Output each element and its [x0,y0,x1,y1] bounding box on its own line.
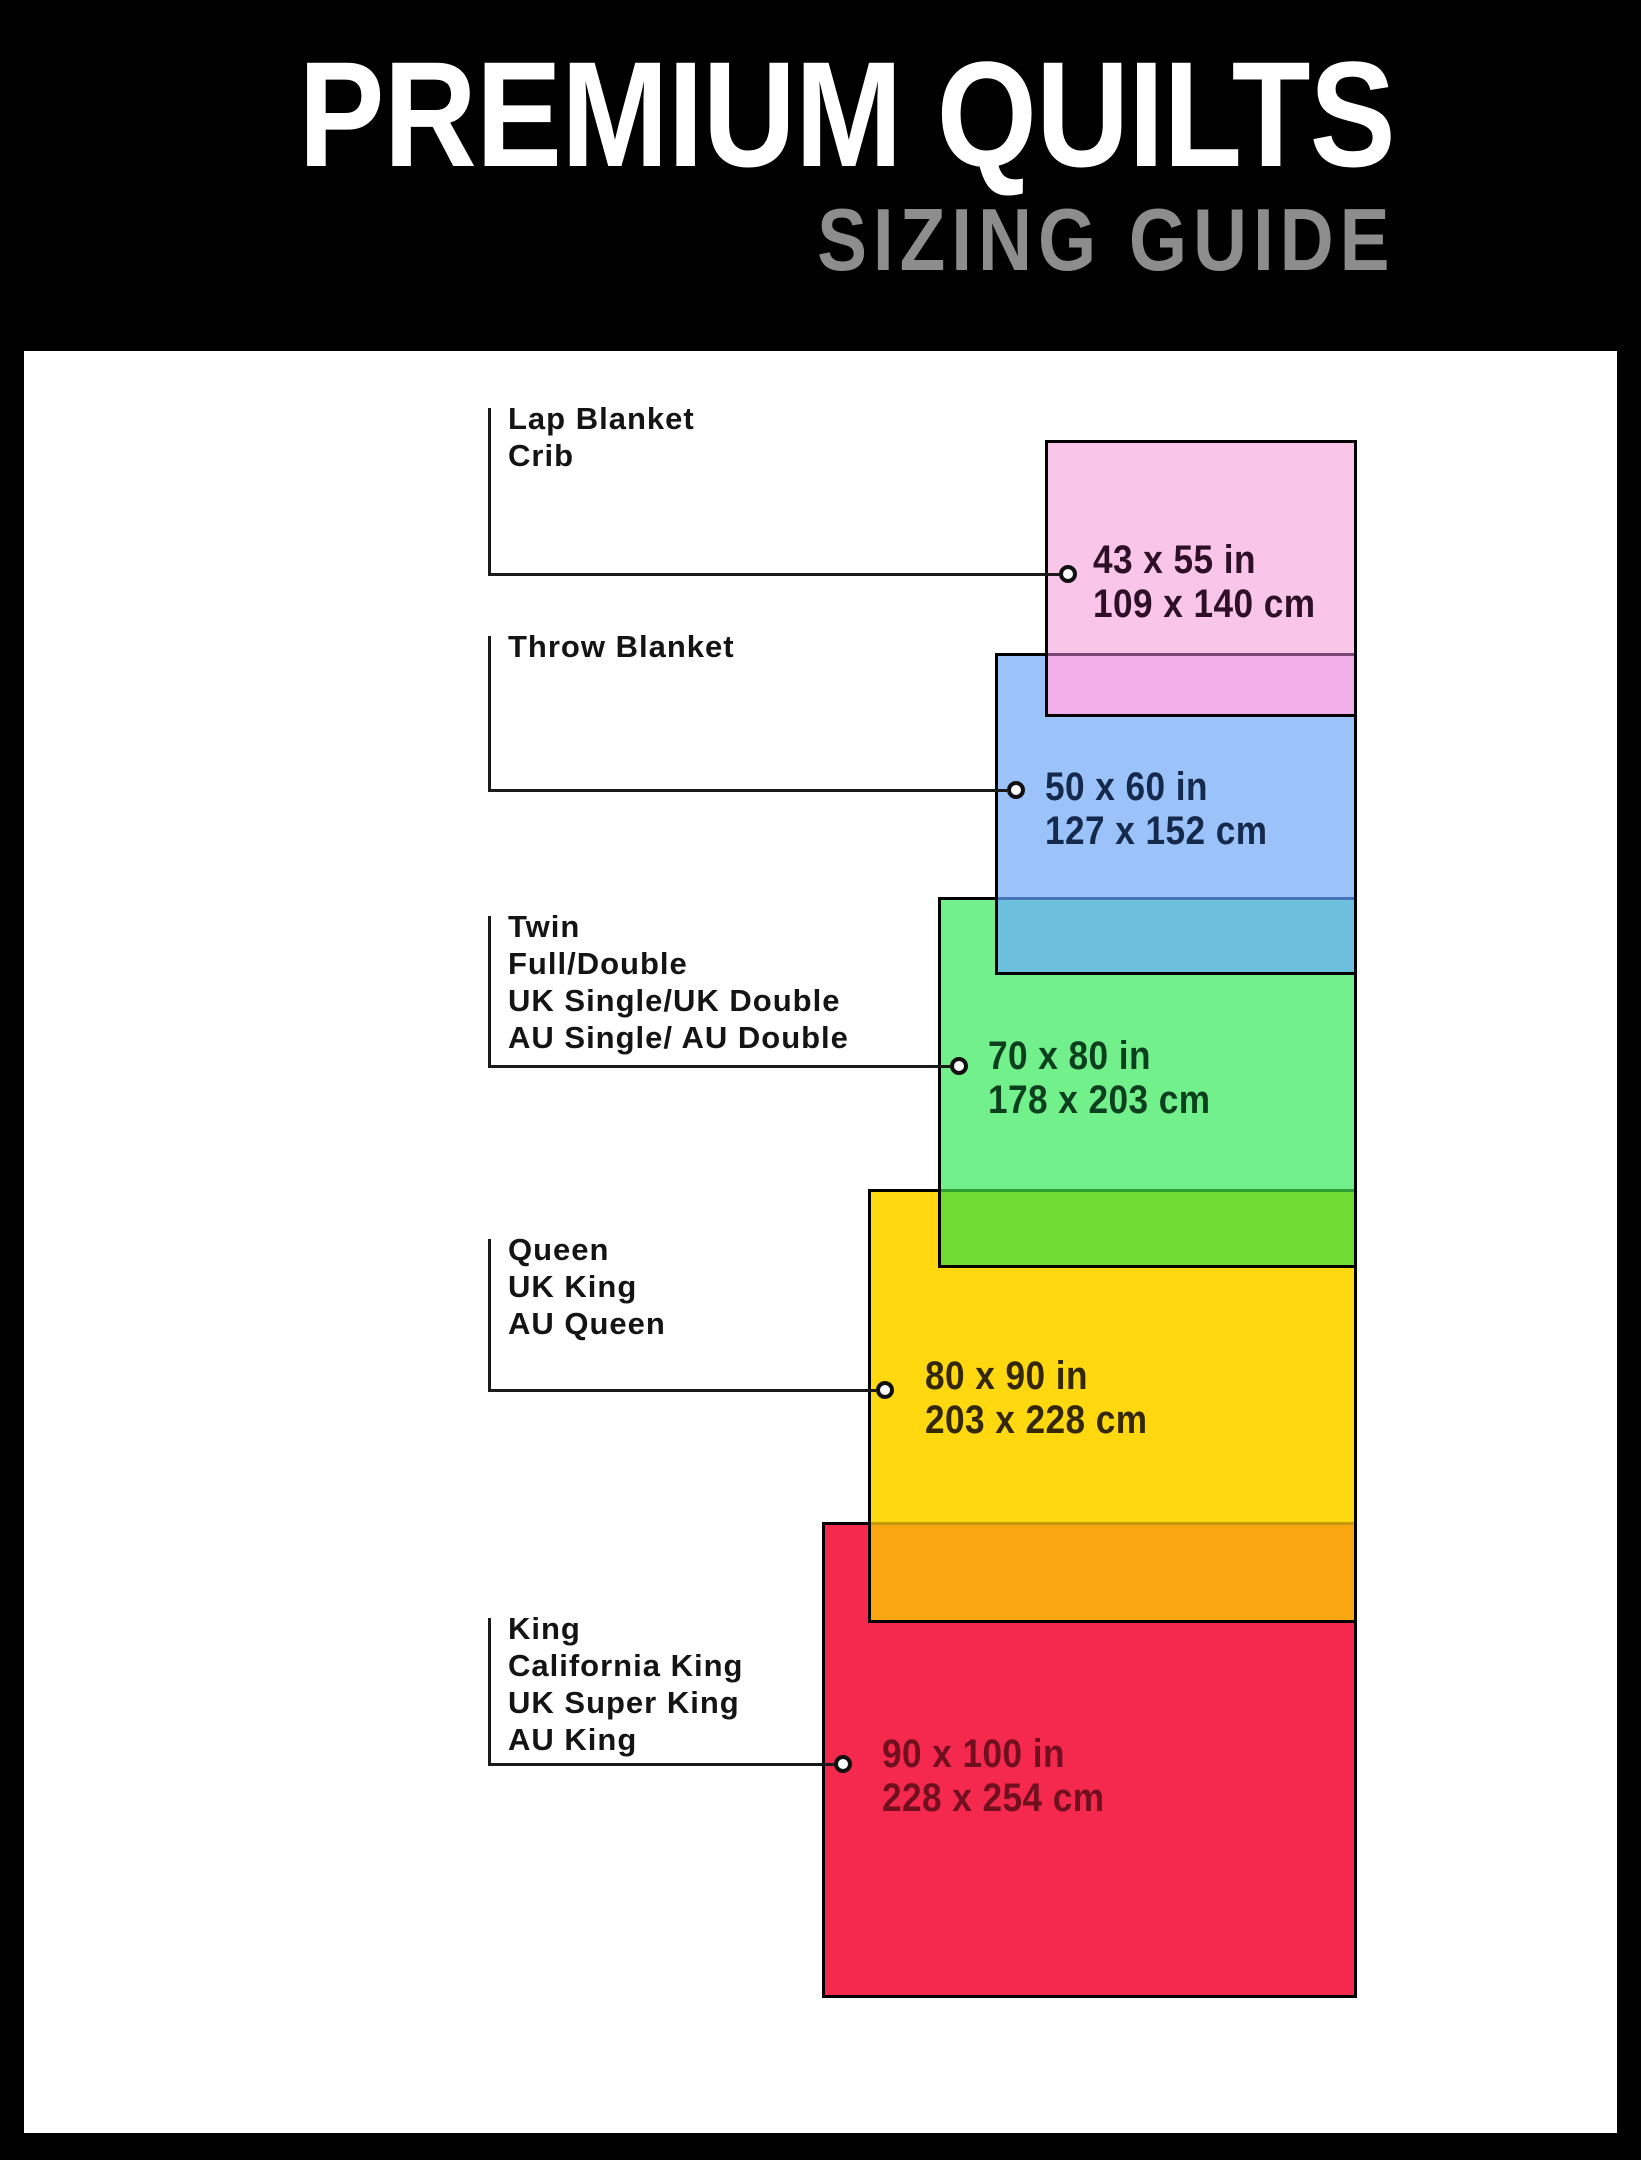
size-label-line: Crib [508,437,695,474]
overlap-lap-blanket-crib-over-throw-blanket [1048,653,1354,714]
size-label-line: Full/Double [508,945,849,982]
label-bracket-twin-full-double [488,916,491,1068]
size-label-line: Queen [508,1231,666,1268]
size-label-line: UK King [508,1268,666,1305]
leader-line-throw-blanket [488,789,1007,792]
size-dimensions-twin-full-double: 70 x 80 in178 x 203 cm [988,1034,1211,1122]
dimensions-inches: 43 x 55 in [1093,538,1316,582]
overlap-queen-uk-king-over-king-california-king [871,1522,1354,1620]
size-label-line: Throw Blanket [508,628,735,665]
dimensions-inches: 50 x 60 in [1045,765,1268,809]
label-bracket-king-california-king [488,1618,491,1766]
leader-dot-lap-blanket-crib [1059,565,1077,583]
dimensions-cm: 109 x 140 cm [1093,582,1316,626]
size-label-lap-blanket-crib: Lap BlanketCrib [508,400,695,474]
dimensions-cm: 228 x 254 cm [882,1776,1105,1820]
leader-dot-king-california-king [834,1755,852,1773]
label-bracket-lap-blanket-crib [488,408,491,576]
size-label-line: AU King [508,1721,743,1758]
dimensions-cm: 203 x 228 cm [925,1398,1148,1442]
white-content-panel [24,351,1617,2133]
quilt-sizing-guide-poster: { "header": { "title": "PREMIUM QUILTS",… [0,0,1641,2160]
size-label-line: California King [508,1647,743,1684]
overlap-throw-blanket-over-twin-full-double [998,897,1354,972]
dimensions-inches: 90 x 100 in [882,1732,1105,1776]
dimensions-cm: 127 x 152 cm [1045,809,1268,853]
leader-dot-twin-full-double [950,1057,968,1075]
overlap-twin-full-double-over-queen-uk-king [941,1189,1354,1265]
size-label-queen-uk-king: QueenUK KingAU Queen [508,1231,666,1342]
leader-line-king-california-king [488,1763,834,1766]
poster-title: PREMIUM QUILTS [299,39,1395,189]
size-dimensions-throw-blanket: 50 x 60 in127 x 152 cm [1045,765,1268,853]
size-dimensions-queen-uk-king: 80 x 90 in203 x 228 cm [925,1354,1148,1442]
leader-line-twin-full-double [488,1065,950,1068]
leader-line-lap-blanket-crib [488,573,1059,576]
label-bracket-throw-blanket [488,636,491,792]
poster-subtitle: SIZING GUIDE [817,196,1395,284]
dimensions-inches: 70 x 80 in [988,1034,1211,1078]
size-label-king-california-king: KingCalifornia KingUK Super KingAU King [508,1610,743,1758]
leader-line-queen-uk-king [488,1389,876,1392]
dimensions-inches: 80 x 90 in [925,1354,1148,1398]
size-dimensions-king-california-king: 90 x 100 in228 x 254 cm [882,1732,1105,1820]
size-label-twin-full-double: TwinFull/DoubleUK Single/UK DoubleAU Sin… [508,908,849,1056]
size-label-line: UK Super King [508,1684,743,1721]
size-dimensions-lap-blanket-crib: 43 x 55 in109 x 140 cm [1093,538,1316,626]
leader-dot-throw-blanket [1007,781,1025,799]
size-label-line: King [508,1610,743,1647]
size-label-line: Lap Blanket [508,400,695,437]
size-label-throw-blanket: Throw Blanket [508,628,735,665]
leader-dot-queen-uk-king [876,1381,894,1399]
size-label-line: AU Single/ AU Double [508,1019,849,1056]
dimensions-cm: 178 x 203 cm [988,1078,1211,1122]
size-label-line: UK Single/UK Double [508,982,849,1019]
size-label-line: AU Queen [508,1305,666,1342]
label-bracket-queen-uk-king [488,1239,491,1392]
size-label-line: Twin [508,908,849,945]
